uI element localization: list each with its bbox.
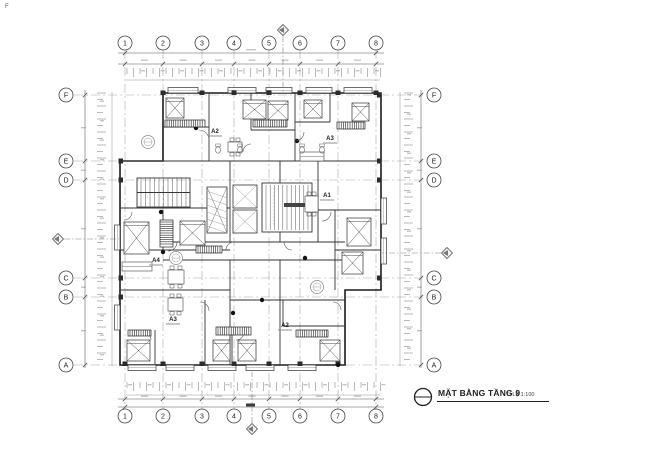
dim-text-smudge bbox=[81, 170, 86, 171]
grid-bubble-row-left-label: D bbox=[63, 177, 68, 184]
dim-text-smudge bbox=[245, 384, 249, 385]
grid-bubble-col-bottom-label: 5 bbox=[267, 413, 271, 420]
chair bbox=[236, 138, 240, 142]
wc-fixture bbox=[216, 147, 221, 153]
unit-label-a2-bottom: A2 bbox=[281, 323, 289, 329]
grid-bubble-col-top-label: 2 bbox=[161, 40, 165, 47]
dim-text-smudge bbox=[417, 330, 422, 331]
dim-text-smudge bbox=[417, 170, 422, 171]
dim-text-smudge bbox=[100, 296, 104, 297]
stair-rail bbox=[284, 203, 308, 207]
dim-text-smudge bbox=[167, 384, 171, 385]
dim-text-smudge bbox=[219, 70, 223, 71]
dim-text-smudge bbox=[180, 396, 187, 397]
grid-bubble-col-bottom-label: 7 bbox=[336, 413, 340, 420]
structural-column bbox=[200, 91, 205, 96]
dim-text-smudge bbox=[417, 228, 422, 229]
grid-bubble-col-bottom-label: 2 bbox=[161, 413, 165, 420]
dim-text-smudge bbox=[417, 127, 422, 128]
grid-bubble-col-bottom-label: 1 bbox=[123, 413, 127, 420]
dim-text-smudge bbox=[180, 60, 187, 61]
door-swing-arc bbox=[333, 302, 341, 310]
dim-text-smudge bbox=[382, 384, 386, 385]
dim-text-smudge bbox=[215, 60, 222, 61]
unit-label-a1-right: A1 bbox=[323, 193, 331, 199]
grid-bubble-col-top-label: 6 bbox=[298, 40, 302, 47]
dim-text-smudge bbox=[226, 384, 230, 385]
grid-bubble-col-top-label: 7 bbox=[336, 40, 340, 47]
drawing-scale: TỈ LỆ 1:100 bbox=[506, 390, 534, 398]
grid-bubble-row-right-label: D bbox=[431, 177, 436, 184]
stray-print-mark: F bbox=[5, 4, 9, 10]
dim-text-smudge bbox=[141, 70, 145, 71]
structural-column bbox=[267, 362, 272, 367]
dim-text-smudge bbox=[407, 270, 411, 271]
wc-tank bbox=[216, 144, 221, 147]
unit-area-smudge bbox=[208, 135, 222, 137]
door-swing-arc bbox=[199, 130, 209, 140]
dim-text-smudge bbox=[161, 70, 165, 71]
dim-overall-smudge bbox=[246, 404, 255, 407]
dim-text-smudge bbox=[407, 309, 411, 310]
door-pivot-dot bbox=[303, 256, 307, 260]
dim-text-smudge bbox=[100, 120, 104, 121]
dim-text-smudge bbox=[316, 396, 323, 397]
door-swing-arc bbox=[243, 144, 251, 152]
dim-text-smudge bbox=[100, 179, 104, 180]
unit-label-a3-bottom: A3 bbox=[169, 317, 177, 323]
grid-bubble-col-top-label: 8 bbox=[374, 40, 378, 47]
wardrobe bbox=[165, 120, 205, 127]
structural-column bbox=[232, 91, 237, 96]
wardrobe bbox=[296, 330, 328, 337]
wc-tank bbox=[320, 144, 325, 147]
dim-text-smudge bbox=[407, 172, 411, 173]
structural-column bbox=[119, 159, 124, 164]
grid-bubble-col-top-label: 4 bbox=[232, 40, 236, 47]
grid-bubble-col-bottom-label: 8 bbox=[374, 413, 378, 420]
unit-area-smudge bbox=[320, 199, 334, 201]
grid-bubble-row-right-label: B bbox=[432, 294, 437, 301]
door-pivot-dot bbox=[336, 363, 340, 367]
dim-text-smudge bbox=[407, 348, 411, 349]
table bbox=[305, 196, 318, 212]
grid-bubble-row-right-label: A bbox=[432, 362, 437, 369]
dim-text-smudge bbox=[100, 354, 104, 355]
dim-text-smudge bbox=[407, 192, 411, 193]
dim-text-smudge bbox=[336, 70, 340, 71]
dim-text-smudge bbox=[81, 127, 86, 128]
title-block: MẶT BẰNG TẦNG 9 TỈ LỆ 1:100 bbox=[415, 388, 550, 406]
dim-text-smudge bbox=[265, 384, 269, 385]
structural-column bbox=[119, 178, 124, 183]
structural-column bbox=[377, 93, 382, 98]
dim-text-smudge bbox=[407, 94, 411, 95]
dim-text-smudge bbox=[407, 328, 411, 329]
dim-text-smudge bbox=[304, 384, 308, 385]
dim-text-smudge bbox=[356, 70, 360, 71]
door-pivot-dot bbox=[260, 298, 264, 302]
grid-bubble-row-left-label: F bbox=[64, 92, 68, 99]
dim-text-smudge bbox=[282, 396, 289, 397]
floor-plan-drawing: 1122334455667788FFEEDDCCBBAA A2 A3 A1 A4… bbox=[0, 0, 658, 461]
drawing-sheet: 1122334455667788FFEEDDCCBBAA A2 A3 A1 A4… bbox=[0, 0, 658, 461]
chair bbox=[178, 266, 182, 270]
structural-column bbox=[298, 91, 303, 96]
structural-column bbox=[336, 91, 341, 96]
structural-column bbox=[161, 91, 166, 96]
structural-column bbox=[377, 276, 382, 281]
dim-text-smudge bbox=[81, 228, 86, 229]
door-swing-arc bbox=[200, 302, 209, 311]
unit-area-smudge bbox=[323, 142, 337, 144]
dim-text-smudge bbox=[407, 289, 411, 290]
dim-text-smudge bbox=[81, 287, 86, 288]
dim-text-smudge bbox=[141, 60, 148, 61]
grid-bubble-row-right-label: F bbox=[432, 92, 436, 99]
dim-text-smudge bbox=[180, 70, 184, 71]
dim-text-smudge bbox=[417, 287, 422, 288]
structural-column bbox=[119, 276, 124, 281]
structural-column bbox=[123, 362, 128, 367]
dim-text-smudge bbox=[100, 335, 104, 336]
unit-area-smudge bbox=[166, 323, 180, 325]
wardrobe bbox=[253, 120, 287, 127]
door-swing-arc bbox=[284, 242, 292, 250]
door-pivot-dot bbox=[159, 210, 163, 214]
dim-text-smudge bbox=[258, 70, 262, 71]
unit-label-a2-top: A2 bbox=[211, 129, 219, 135]
structural-column bbox=[232, 362, 237, 367]
dim-text-smudge bbox=[206, 384, 210, 385]
structural-column bbox=[119, 295, 124, 300]
dim-text-smudge bbox=[297, 70, 301, 71]
grid-bubble-col-top-label: 3 bbox=[200, 40, 204, 47]
dim-text-smudge bbox=[100, 140, 104, 141]
grid-bubble-col-top-label: 5 bbox=[267, 40, 271, 47]
grid-bubble-row-left-label: B bbox=[64, 294, 69, 301]
dim-text-smudge bbox=[282, 60, 289, 61]
chair bbox=[312, 213, 316, 217]
dim-text-smudge bbox=[323, 384, 327, 385]
door-swing-arc bbox=[226, 242, 234, 250]
dim-text-smudge bbox=[278, 70, 282, 71]
dim-text-smudge bbox=[284, 384, 288, 385]
dim-text-smudge bbox=[375, 70, 379, 71]
dim-text-smudge bbox=[81, 330, 86, 331]
dim-text-smudge bbox=[246, 49, 256, 50]
grid-bubble-row-left-label: E bbox=[64, 158, 69, 165]
grid-bubble-row-left-label: C bbox=[63, 275, 68, 282]
unit-label-a4-left: A4 bbox=[152, 258, 160, 264]
dim-text-smudge bbox=[407, 114, 411, 115]
chair bbox=[230, 153, 234, 157]
grid-bubble-col-top-label: 1 bbox=[123, 40, 127, 47]
dim-text-smudge bbox=[200, 70, 204, 71]
chair bbox=[178, 285, 182, 289]
dim-text-smudge bbox=[187, 384, 191, 385]
chair bbox=[170, 285, 174, 289]
dim-text-smudge bbox=[407, 231, 411, 232]
dim-text-smudge bbox=[128, 384, 132, 385]
dim-text-smudge bbox=[407, 211, 411, 212]
chair bbox=[230, 138, 234, 142]
grid-bubble-col-bottom-label: 3 bbox=[200, 413, 204, 420]
dim-text-smudge bbox=[100, 237, 104, 238]
dim-text-smudge bbox=[362, 384, 366, 385]
unit-area-smudge bbox=[149, 264, 163, 266]
dim-text-smudge bbox=[215, 396, 222, 397]
structural-column bbox=[161, 362, 166, 367]
dim-text-smudge bbox=[141, 396, 148, 397]
structural-column bbox=[267, 91, 272, 96]
dim-text-smudge bbox=[407, 250, 411, 251]
structural-column bbox=[298, 362, 303, 367]
dim-text-smudge bbox=[100, 276, 104, 277]
wc-tank bbox=[300, 144, 305, 147]
grid-bubble-col-bottom-label: 6 bbox=[298, 413, 302, 420]
chair bbox=[170, 266, 174, 270]
dim-text-smudge bbox=[354, 396, 361, 397]
dim-text-smudge bbox=[343, 384, 347, 385]
dim-text-smudge bbox=[249, 60, 256, 61]
dim-text-smudge bbox=[100, 198, 104, 199]
grid-bubble-col-bottom-label: 4 bbox=[232, 413, 236, 420]
dim-text-smudge bbox=[317, 70, 321, 71]
table bbox=[168, 298, 183, 311]
dim-text-smudge bbox=[100, 101, 104, 102]
structural-column bbox=[377, 159, 382, 164]
table bbox=[168, 270, 184, 284]
grid-bubble-row-left-label: A bbox=[64, 362, 69, 369]
dim-text-smudge bbox=[100, 257, 104, 258]
door-pivot-dot bbox=[161, 250, 165, 254]
chair bbox=[170, 312, 174, 316]
grid-bubble-row-right-label: C bbox=[431, 275, 436, 282]
dim-text-smudge bbox=[354, 60, 361, 61]
unit-area-smudge bbox=[278, 329, 292, 331]
door-swing-arc bbox=[322, 212, 331, 221]
dim-text-smudge bbox=[100, 315, 104, 316]
door-pivot-dot bbox=[231, 311, 235, 315]
dim-text-smudge bbox=[316, 60, 323, 61]
dim-text-smudge bbox=[239, 70, 243, 71]
dim-text-smudge bbox=[100, 159, 104, 160]
unit-label-a3-top: A3 bbox=[326, 136, 334, 142]
dim-text-smudge bbox=[100, 218, 104, 219]
structural-column bbox=[377, 178, 382, 183]
structural-column bbox=[200, 362, 205, 367]
chair bbox=[312, 192, 316, 196]
chair bbox=[177, 312, 181, 316]
grid-bubble-row-right-label: E bbox=[432, 158, 437, 165]
dim-text-smudge bbox=[148, 384, 152, 385]
dim-text-smudge bbox=[407, 133, 411, 134]
dim-text-smudge bbox=[407, 153, 411, 154]
